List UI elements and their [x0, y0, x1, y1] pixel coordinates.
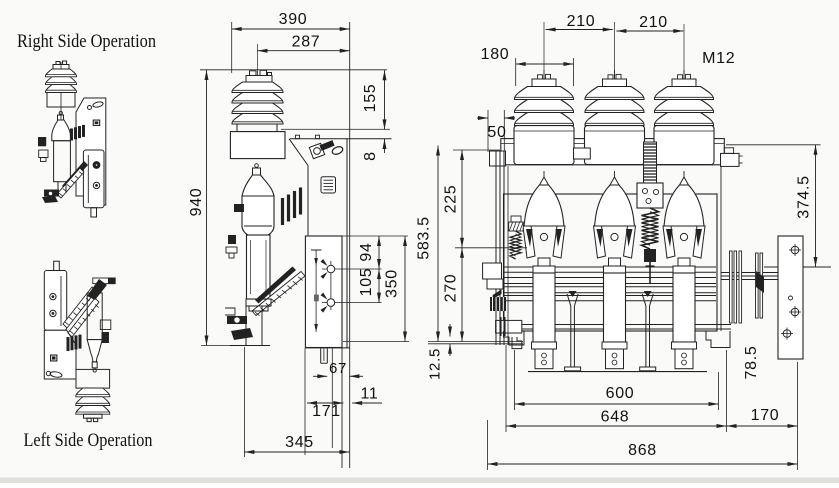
- svg-text:105: 105: [358, 268, 375, 297]
- svg-text:171: 171: [312, 403, 341, 420]
- svg-text:600: 600: [606, 385, 635, 402]
- svg-text:50: 50: [487, 124, 506, 141]
- svg-text:270: 270: [443, 274, 460, 303]
- svg-text:374.5: 374.5: [796, 175, 813, 219]
- svg-text:M12: M12: [702, 50, 735, 67]
- svg-text:67: 67: [329, 360, 347, 377]
- svg-text:94: 94: [358, 242, 375, 261]
- svg-text:287: 287: [292, 34, 321, 51]
- svg-text:210: 210: [567, 13, 596, 30]
- svg-text:12.5: 12.5: [427, 348, 444, 380]
- svg-text:350: 350: [384, 269, 401, 298]
- svg-text:225: 225: [443, 185, 460, 214]
- svg-text:170: 170: [751, 407, 780, 424]
- svg-text:210: 210: [639, 14, 668, 31]
- svg-text:78.5: 78.5: [743, 346, 760, 380]
- svg-text:345: 345: [285, 434, 314, 451]
- svg-text:Right Side Operation: Right Side Operation: [17, 31, 156, 52]
- svg-text:390: 390: [279, 11, 308, 28]
- svg-text:940: 940: [188, 188, 205, 217]
- svg-text:583.5: 583.5: [416, 216, 433, 260]
- svg-text:155: 155: [362, 84, 379, 113]
- svg-text:8: 8: [362, 151, 379, 161]
- svg-text:868: 868: [628, 442, 657, 459]
- svg-text:Left Side Operation: Left Side Operation: [24, 430, 153, 451]
- svg-text:11: 11: [360, 386, 378, 403]
- svg-text:180: 180: [481, 46, 510, 63]
- svg-text:648: 648: [601, 409, 630, 426]
